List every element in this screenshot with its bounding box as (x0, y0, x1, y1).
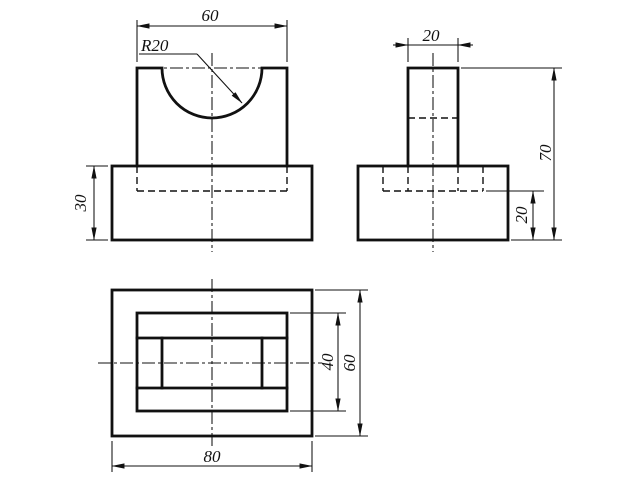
side-dim-base-recess-text: 20 (512, 206, 531, 224)
top-dim-pocket-depth-text: 40 (318, 353, 337, 371)
side-dim-top-width-text: 20 (423, 26, 441, 45)
front-dim-width-text: 60 (202, 6, 220, 25)
side-view: 20 70 20 (358, 26, 562, 252)
front-dim-base-height: 30 (71, 166, 108, 240)
top-view: 40 60 80 (98, 279, 368, 472)
front-radius-text: R20 (140, 36, 169, 55)
side-dim-total-height-text: 70 (536, 144, 555, 162)
side-dim-base-recess: 20 (486, 191, 544, 240)
front-radius-callout: R20 (139, 36, 242, 103)
top-dim-overall-depth-text: 60 (340, 354, 359, 372)
front-view: 60 R20 30 (71, 6, 312, 252)
engineering-drawing: 60 R20 30 20 (0, 0, 640, 480)
top-dim-overall-width-text: 80 (204, 447, 222, 466)
front-dim-base-height-text: 30 (71, 194, 90, 213)
front-radius-leader-line (197, 54, 242, 103)
drawing-canvas: 60 R20 30 20 (0, 0, 640, 480)
top-dim-pocket-depth: 40 (290, 313, 346, 411)
